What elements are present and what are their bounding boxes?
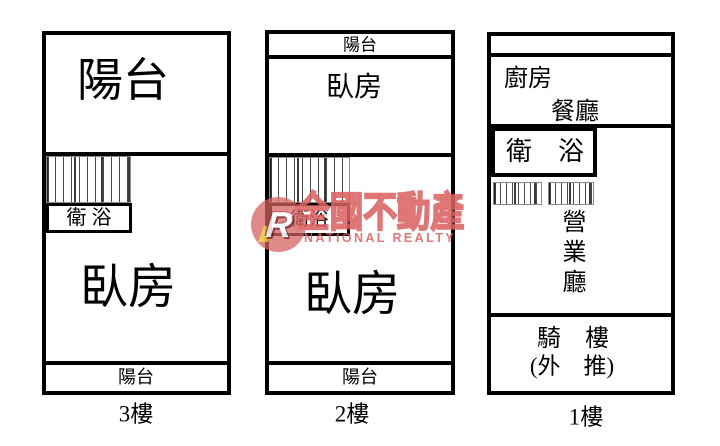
logo-letter: R <box>264 207 294 243</box>
watermark: R 全國不動產 NATIONAL REALTY <box>0 0 720 446</box>
watermark-subtitle-text: NATIONAL REALTY <box>304 231 456 245</box>
watermark-brand-text: 全國不動產 <box>296 191 464 234</box>
floorplan-canvas: 陽台 衛 浴 臥房 陽台 陽台 臥房 衛浴 臥房 陽台 廚房 餐廳 衛 浴 營業… <box>0 0 720 446</box>
